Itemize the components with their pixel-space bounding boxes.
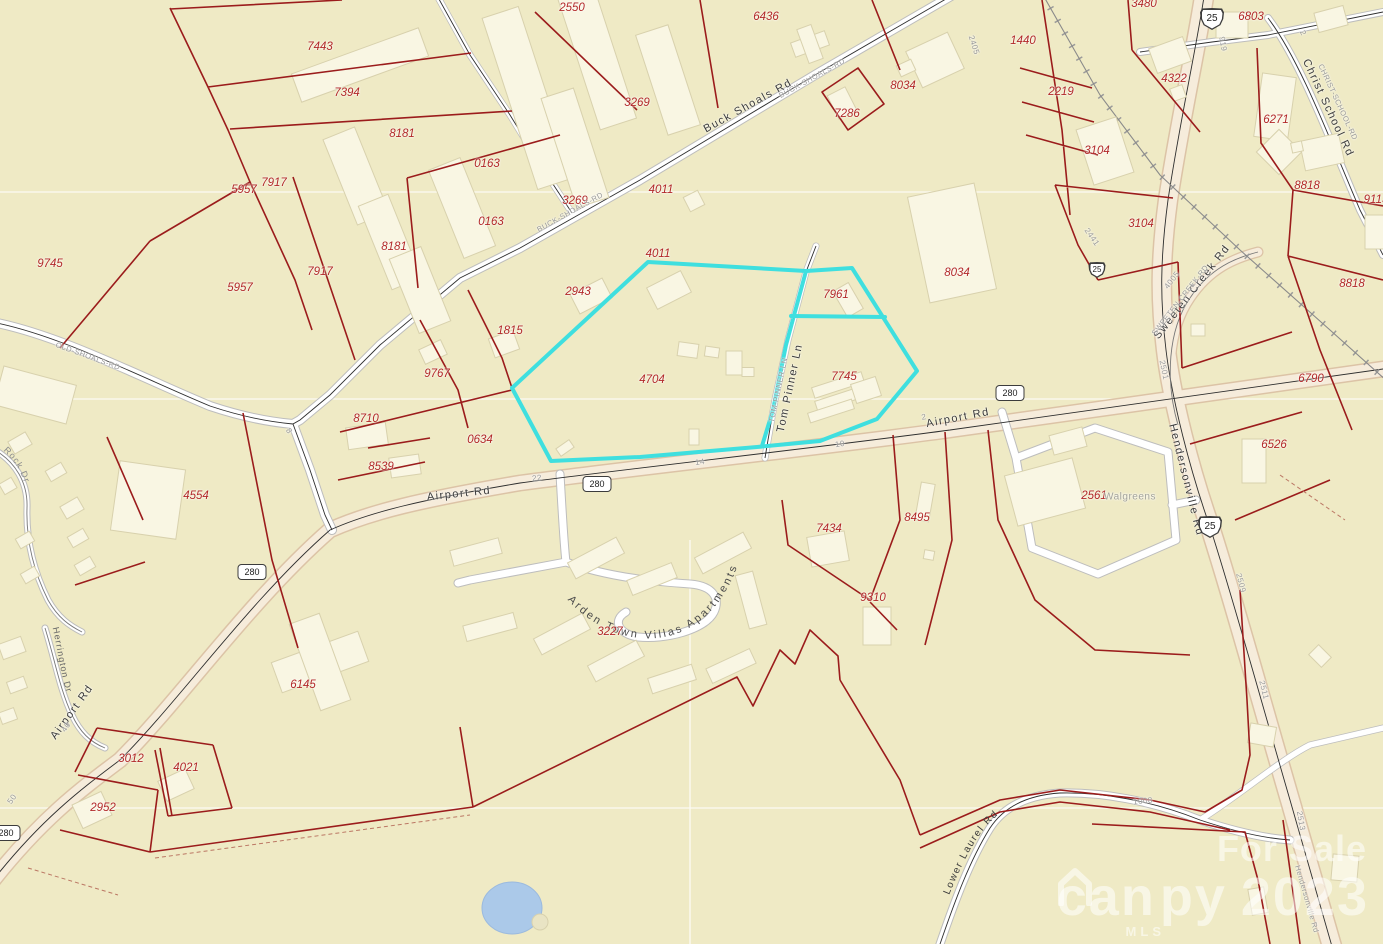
- road-segment-label: 14: [695, 457, 706, 467]
- parcel-number-label: 4021: [173, 762, 199, 774]
- watermark-year: 2023: [1241, 866, 1369, 928]
- building-footprint: [704, 346, 719, 358]
- building-footprint: [689, 429, 699, 445]
- pond: [482, 882, 548, 934]
- parcel-number-label: 8710: [353, 413, 379, 425]
- parcel-number-label: 8495: [904, 512, 930, 524]
- map-canvas: Arden Town Villas Apartments Lower Laure…: [0, 0, 1383, 944]
- parcel-number-label: 4704: [639, 374, 665, 386]
- building-footprint: [587, 640, 644, 682]
- building-footprint: [706, 649, 756, 684]
- parcel-number-label: 9310: [860, 592, 886, 604]
- parcel-number-label: 1815: [497, 325, 523, 337]
- building-footprint: [556, 440, 574, 457]
- building-footprint: [0, 708, 18, 725]
- parcel-number-label: 2952: [90, 802, 116, 814]
- parcel-number-label: 6271: [1263, 114, 1289, 126]
- parcel-number-label: 8818: [1294, 180, 1320, 192]
- building-footprint: [742, 368, 754, 377]
- parcel-number-label: 6436: [753, 11, 779, 23]
- building-footprint: [726, 351, 742, 375]
- route-shield-us-25: 25: [1089, 262, 1106, 278]
- road-segment-label: 22: [532, 473, 543, 483]
- parcel-number-label: 3012: [118, 753, 144, 765]
- building-footprint: [450, 538, 502, 566]
- parcel-number-label: 3227: [597, 626, 623, 638]
- parcel-number-label: 0634: [467, 434, 493, 446]
- parcel-number-label: 8034: [944, 267, 970, 279]
- parcel-number-label: 3269: [624, 97, 650, 109]
- parcel-number-label: 9113: [1364, 194, 1383, 206]
- building-footprint: [677, 342, 699, 359]
- parcel-number-label: 2219: [1048, 86, 1074, 98]
- parcel-number-label: 4322: [1161, 73, 1187, 85]
- parcel-number-label: 4554: [183, 490, 209, 502]
- parcel-number-label: 7745: [831, 371, 857, 383]
- parcel-number-label: 8181: [381, 241, 407, 253]
- route-shield-us-25: 25: [1200, 8, 1224, 30]
- building-footprint: [694, 532, 751, 574]
- building-footprint: [533, 613, 590, 655]
- parcel-number-label: 5957: [231, 184, 257, 196]
- building-footprint: [1314, 5, 1348, 32]
- building-footprint: [0, 477, 17, 494]
- parcel-number-label: 6145: [290, 679, 316, 691]
- parcel-number-label: 6790: [1298, 373, 1324, 385]
- watermark-mls: MLS: [1126, 924, 1165, 939]
- building-footprint: [1291, 141, 1304, 153]
- parcel-number-label: 7917: [307, 266, 333, 278]
- building-footprint: [863, 607, 891, 645]
- railroad: [1043, 0, 1383, 382]
- route-shield-us-25: 25: [1198, 516, 1222, 538]
- parcel-number-label: 7961: [823, 289, 849, 301]
- building-footprint: [648, 664, 697, 693]
- building-footprint: [74, 556, 96, 575]
- building-footprint: [1049, 427, 1087, 455]
- parcel-number-label: 7394: [334, 87, 360, 99]
- parcel-number-label: 7917: [261, 177, 287, 189]
- building-footprint: [0, 636, 26, 659]
- watermark-for-sale: For Sale: [1217, 828, 1367, 870]
- building-footprint: [1365, 215, 1383, 249]
- parcel-number-label: 8539: [368, 461, 394, 473]
- parcel-number-label: 6526: [1261, 439, 1287, 451]
- parcel-number-label: 8034: [890, 80, 916, 92]
- watermark-brand: can py 2023: [1057, 866, 1369, 928]
- building-footprint: [1309, 645, 1332, 668]
- building-footprint: [908, 183, 997, 303]
- parcel-number-label: 3480: [1131, 0, 1157, 10]
- parcel-number-label: 7434: [816, 523, 842, 535]
- parcel-map[interactable]: Arden Town Villas Apartments Lower Laure…: [0, 0, 1383, 944]
- building-footprint: [428, 158, 495, 259]
- route-shield-nc-280: 280: [238, 564, 267, 580]
- building-footprint: [1247, 723, 1276, 747]
- route-shield-nc-280: 280: [0, 825, 21, 841]
- building-footprint: [463, 613, 517, 642]
- building-footprint: [1191, 324, 1205, 336]
- parcel-number-label: 4011: [646, 248, 671, 260]
- parcel-number-label: 8181: [389, 128, 415, 140]
- building-footprint: [735, 571, 767, 629]
- parcel-number-label: 3104: [1084, 145, 1110, 157]
- parcel-number-label: 9767: [424, 368, 450, 380]
- building-footprint: [627, 563, 677, 596]
- watermark-brand-suffix: py: [1160, 866, 1227, 928]
- parcel-number-label: 7286: [834, 108, 860, 120]
- highway-roads: [0, 0, 1383, 944]
- road-segment-label: 10: [834, 439, 845, 449]
- building-footprint: [923, 550, 934, 561]
- parcel-number-label: 3104: [1128, 218, 1154, 230]
- parcel-number-label: 2550: [559, 2, 585, 14]
- parcel-number-label: 2943: [565, 286, 591, 298]
- poi-label: Walgreens: [1104, 492, 1156, 503]
- parcel-number-label: 5957: [227, 282, 253, 294]
- building-footprint: [683, 190, 705, 212]
- parcel-number-label: 9745: [37, 258, 63, 270]
- building-footprint: [6, 676, 27, 693]
- parcel-number-label: 0163: [474, 158, 500, 170]
- building-footprint: [0, 366, 76, 424]
- building-footprint: [67, 528, 89, 547]
- building-footprint: [60, 497, 84, 519]
- parcel-number-label: 0163: [478, 216, 504, 228]
- building-footprint: [636, 25, 701, 135]
- parcel-number-label: 2561: [1081, 490, 1107, 502]
- parcel-number-label: 6803: [1238, 11, 1264, 23]
- parcel-number-label: 7443: [307, 41, 333, 53]
- parcel-number-label: 4011: [649, 184, 674, 196]
- building-footprint: [45, 462, 67, 481]
- building-footprint: [647, 271, 692, 310]
- route-shield-nc-280: 280: [996, 385, 1025, 401]
- route-shield-nc-280: 280: [583, 476, 612, 492]
- parcel-number-label: 1440: [1010, 35, 1036, 47]
- parcel-number-label: 8818: [1339, 278, 1365, 290]
